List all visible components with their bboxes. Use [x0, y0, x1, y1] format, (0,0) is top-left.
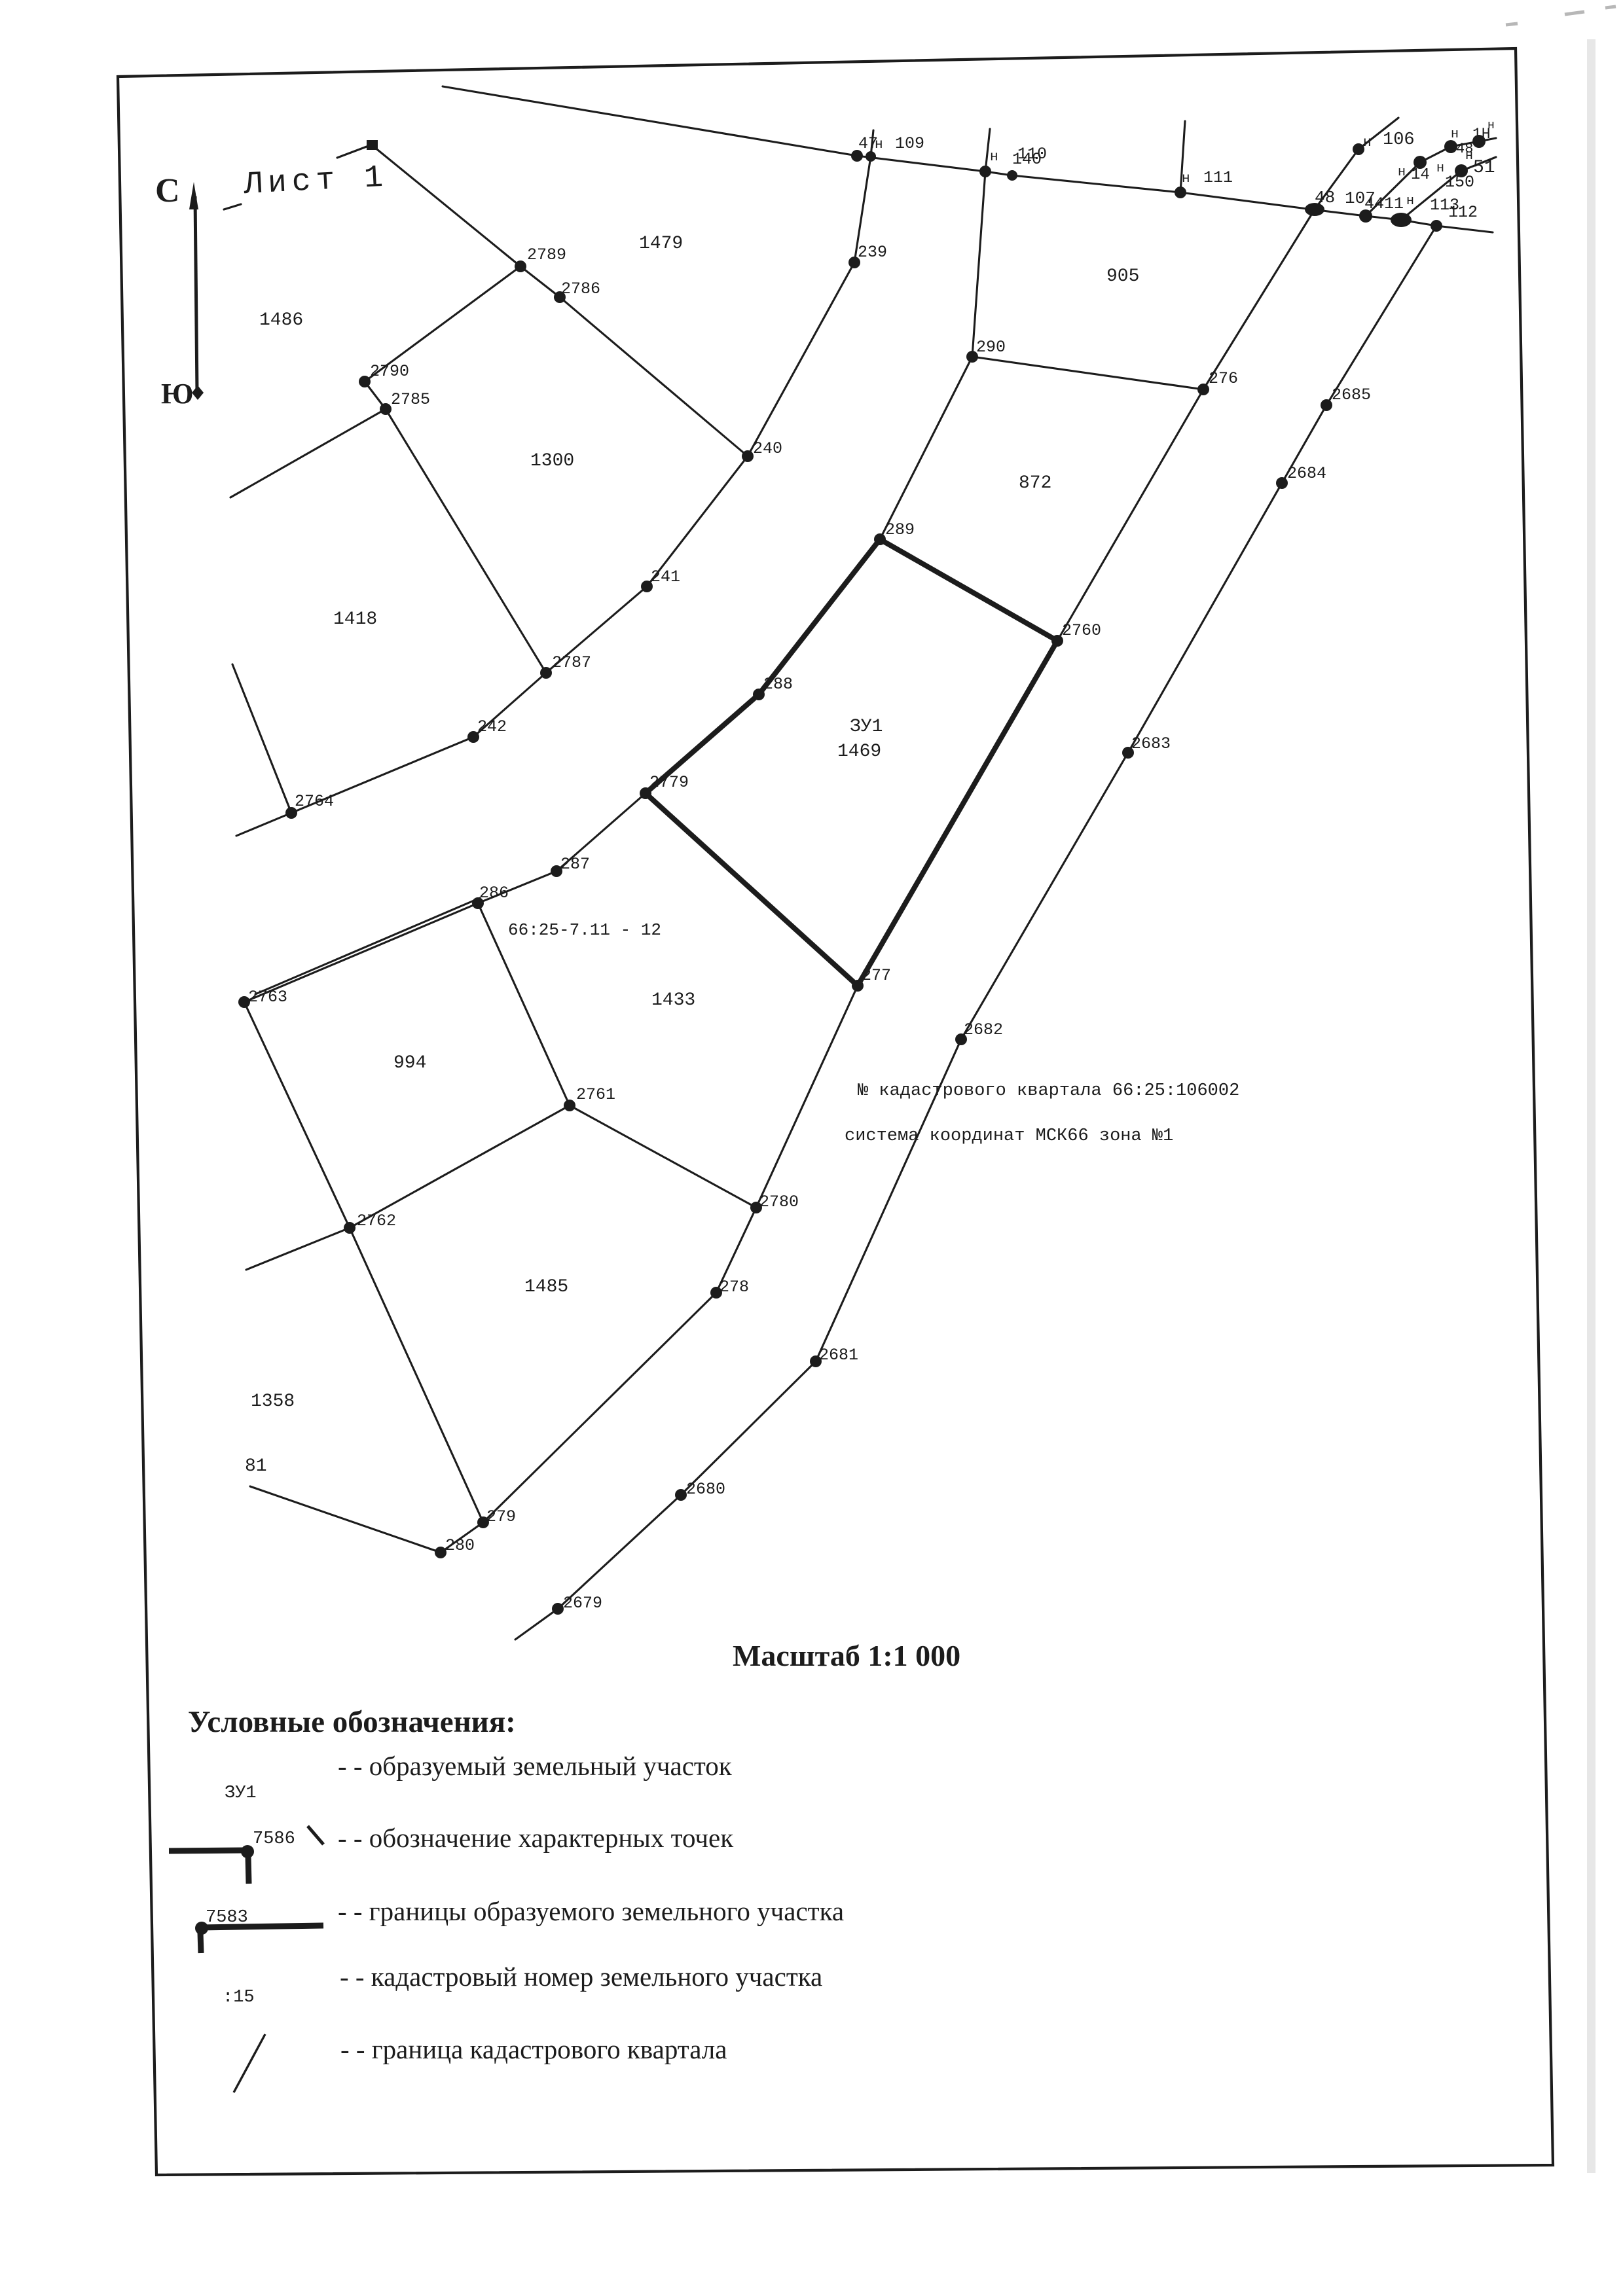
svg-text:14: 14 [1411, 166, 1430, 184]
svg-text:н: н [1487, 119, 1495, 132]
svg-text:н: н [1451, 127, 1459, 142]
svg-text:279: 279 [486, 1507, 516, 1526]
svg-text:2762: 2762 [357, 1211, 396, 1230]
svg-text:280: 280 [445, 1536, 475, 1555]
svg-text:№ кадастрового квартала 66:25:: № кадастрового квартала 66:25:106002 [858, 1081, 1239, 1101]
svg-text:2683: 2683 [1131, 734, 1171, 753]
svg-text:2682: 2682 [964, 1020, 1003, 1039]
svg-text:51: 51 [1473, 158, 1495, 178]
svg-text:4411: 4411 [1364, 194, 1404, 213]
svg-text:1469: 1469 [837, 742, 881, 762]
svg-text:1479: 1479 [639, 234, 683, 254]
svg-text:1485: 1485 [524, 1277, 568, 1297]
svg-text:241: 241 [651, 567, 680, 586]
svg-text:2763: 2763 [248, 988, 287, 1007]
svg-text:1358: 1358 [251, 1391, 295, 1412]
svg-text:2681: 2681 [819, 1346, 858, 1365]
svg-text:276: 276 [1209, 369, 1238, 388]
svg-text:81: 81 [245, 1456, 267, 1477]
svg-text:1486: 1486 [259, 310, 303, 331]
svg-text:2789: 2789 [527, 245, 566, 264]
svg-text:ЗУ1: ЗУ1 [225, 1784, 257, 1803]
svg-text:278: 278 [720, 1278, 749, 1297]
svg-text:872: 872 [1019, 473, 1051, 493]
svg-text:110: 110 [1017, 145, 1047, 164]
svg-text:286: 286 [479, 884, 509, 903]
svg-text:2685: 2685 [1332, 386, 1371, 404]
svg-text::15: :15 [223, 1988, 255, 2007]
svg-text:н: н [1465, 149, 1473, 164]
svg-text:система координат МСК66 зона №: система координат МСК66 зона №1 [845, 1126, 1173, 1146]
svg-text:н: н [990, 150, 998, 165]
svg-text:239: 239 [858, 243, 887, 262]
svg-text:1433: 1433 [651, 990, 695, 1011]
svg-text:2790: 2790 [370, 362, 409, 381]
svg-text:290: 290 [976, 338, 1006, 357]
svg-text:2760: 2760 [1062, 621, 1101, 640]
svg-text:2680: 2680 [686, 1480, 725, 1499]
svg-text:2764: 2764 [295, 792, 334, 811]
svg-text:Ю: Ю [161, 378, 194, 410]
svg-text:н: н [1406, 194, 1414, 209]
svg-text:7586: 7586 [253, 1829, 295, 1849]
svg-text:2785: 2785 [391, 390, 430, 409]
svg-text:242: 242 [477, 717, 507, 736]
svg-text:994: 994 [393, 1053, 426, 1073]
svg-text:н: н [1363, 135, 1372, 151]
svg-text:н: н [1398, 165, 1406, 180]
svg-text:н: н [875, 137, 883, 152]
svg-text:- - образуемый земельный участ: - - образуемый земельный участок [338, 1751, 732, 1781]
svg-text:Условные обозначения:: Условные обозначения: [188, 1705, 516, 1739]
svg-text:112: 112 [1448, 203, 1478, 222]
svg-text:277: 277 [862, 966, 891, 985]
svg-text:288: 288 [763, 675, 793, 694]
svg-text:- - граница кадастрового кварт: - - граница кадастрового квартала [340, 2034, 727, 2064]
svg-text:1418: 1418 [333, 609, 377, 630]
svg-text:2780: 2780 [759, 1193, 799, 1211]
svg-text:н: н [1436, 161, 1444, 176]
svg-text:2679: 2679 [563, 1594, 602, 1613]
svg-text:150: 150 [1445, 173, 1474, 192]
svg-text:289: 289 [885, 520, 915, 539]
svg-text:111: 111 [1203, 168, 1233, 187]
svg-text:109: 109 [895, 134, 924, 153]
svg-text:С: С [155, 172, 180, 209]
svg-text:Масштаб 1:1 000: Масштаб 1:1 000 [733, 1639, 960, 1672]
svg-text:240: 240 [753, 439, 782, 458]
svg-text:905: 905 [1106, 266, 1139, 287]
svg-text:н: н [1182, 171, 1190, 187]
svg-text:2761: 2761 [576, 1085, 615, 1104]
svg-text:- - кадастровый номер земельно: - - кадастровый номер земельного участка [340, 1962, 822, 1992]
svg-text:2786: 2786 [561, 279, 600, 298]
svg-text:1300: 1300 [530, 451, 574, 471]
svg-text:- - обозначение характерных то: - - обозначение характерных точек [338, 1823, 733, 1853]
svg-text:2779: 2779 [649, 773, 689, 792]
svg-text:ЗУ1: ЗУ1 [850, 717, 883, 737]
svg-text:287: 287 [560, 855, 590, 874]
svg-text:106: 106 [1383, 130, 1415, 150]
svg-text:- - границы образуемого земель: - - границы образуемого земельного участ… [338, 1896, 844, 1926]
svg-text:2787: 2787 [552, 653, 591, 672]
svg-text:48: 48 [1315, 188, 1335, 207]
svg-text:66:25-7.11 - 12: 66:25-7.11 - 12 [508, 920, 661, 940]
svg-text:2684: 2684 [1287, 464, 1326, 483]
